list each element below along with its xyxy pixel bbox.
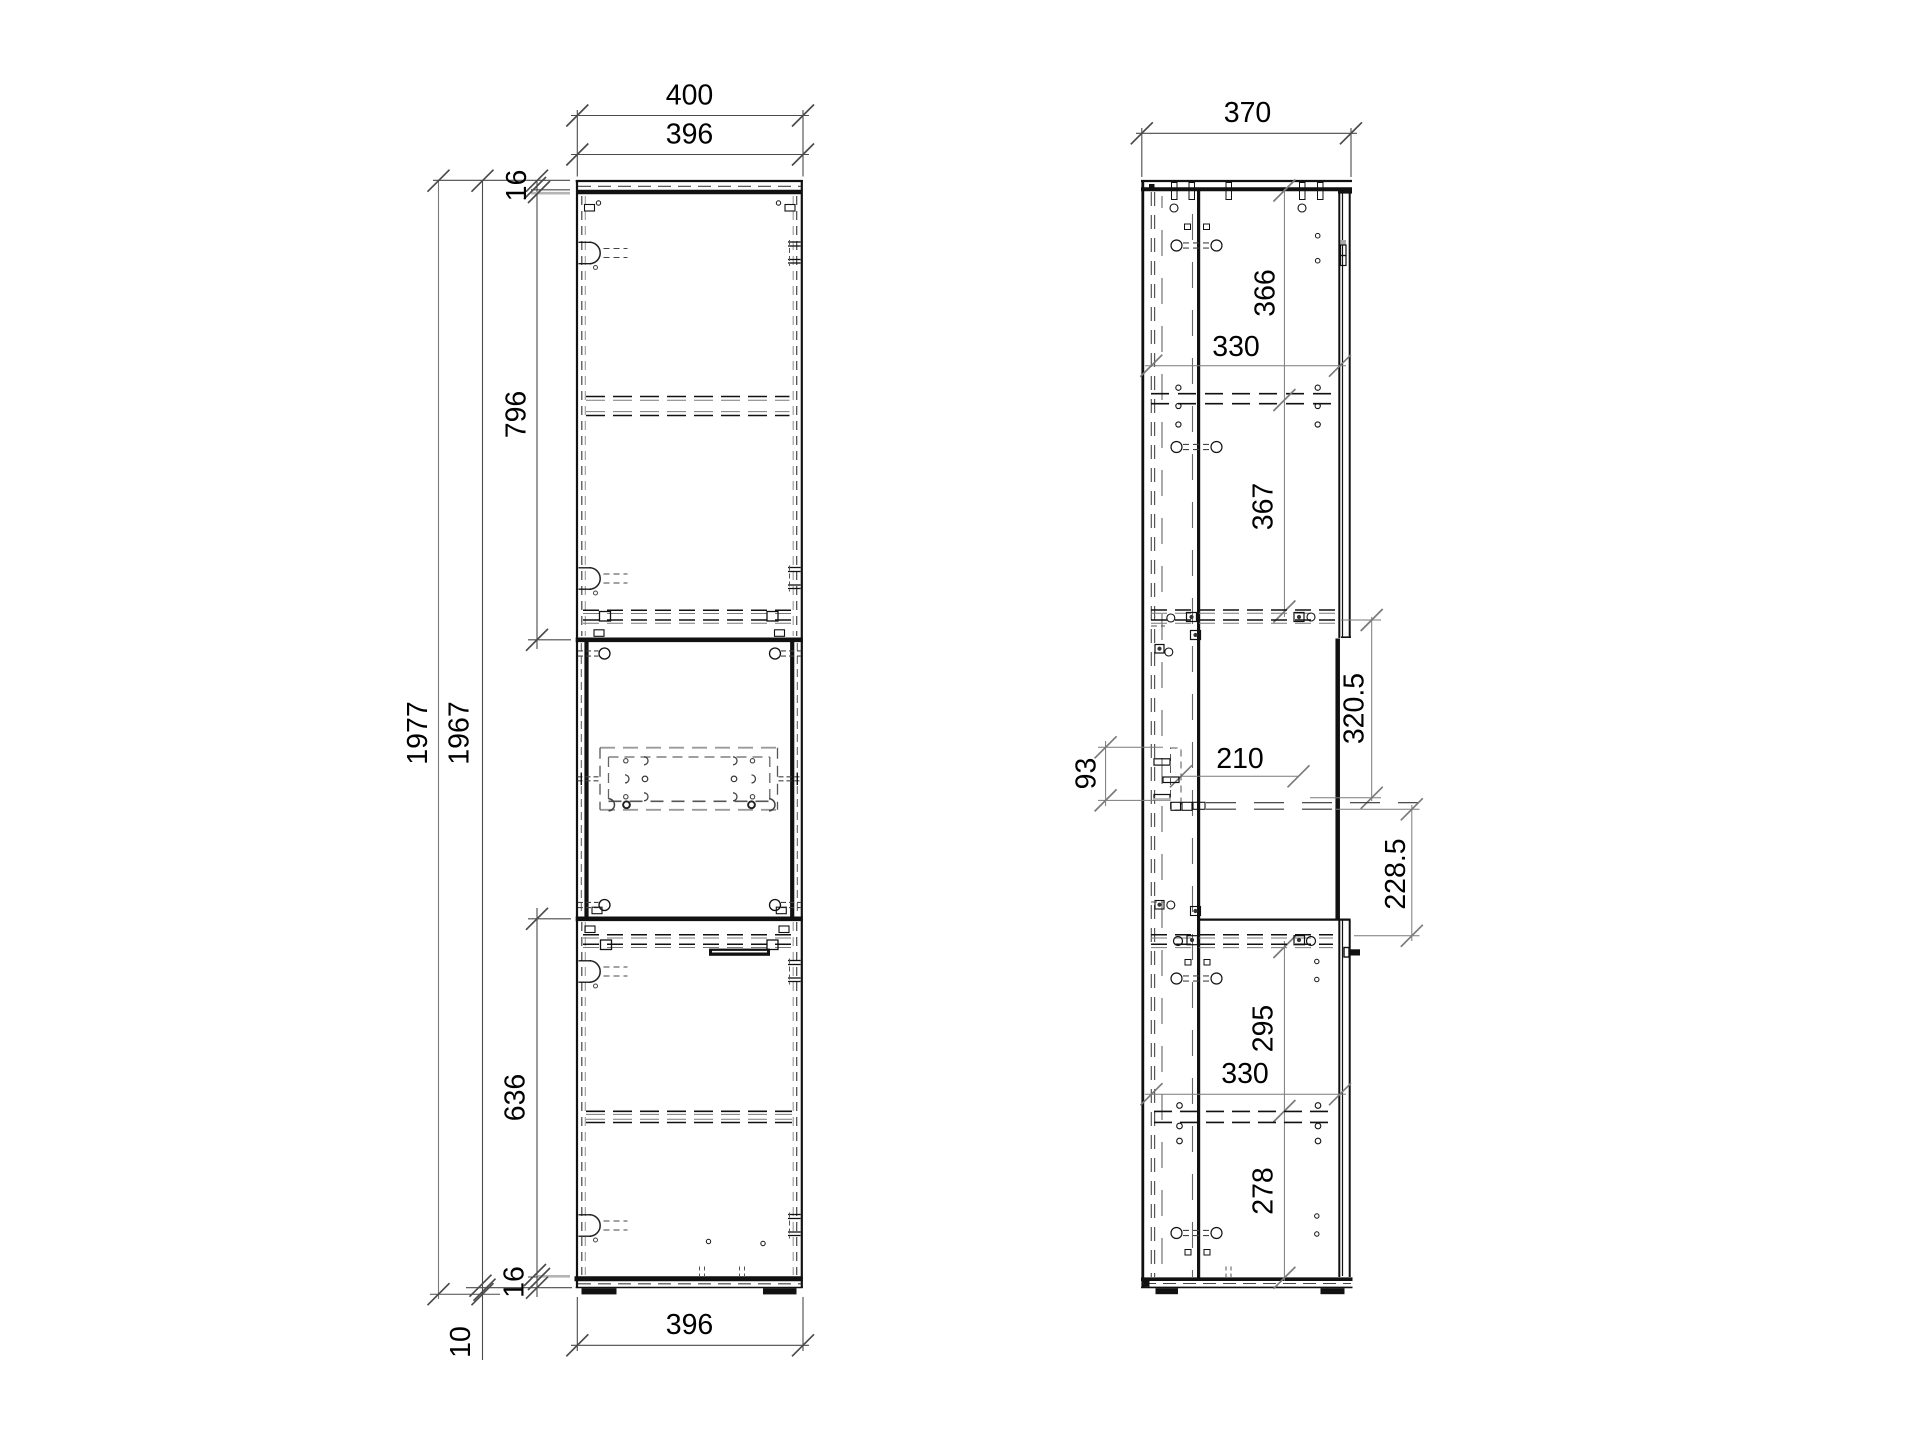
svg-text:796: 796 bbox=[501, 391, 533, 439]
svg-text:16: 16 bbox=[499, 1266, 531, 1298]
svg-text:636: 636 bbox=[500, 1074, 532, 1122]
svg-text:210: 210 bbox=[1216, 743, 1264, 775]
svg-text:400: 400 bbox=[666, 80, 714, 112]
svg-text:1967: 1967 bbox=[444, 701, 476, 764]
svg-text:228.5: 228.5 bbox=[1380, 838, 1412, 909]
svg-text:370: 370 bbox=[1224, 97, 1272, 129]
svg-text:366: 366 bbox=[1250, 269, 1282, 317]
svg-text:330: 330 bbox=[1221, 1058, 1269, 1090]
svg-text:93: 93 bbox=[1071, 758, 1103, 790]
svg-text:396: 396 bbox=[666, 1309, 714, 1341]
svg-text:278: 278 bbox=[1248, 1167, 1280, 1215]
svg-text:396: 396 bbox=[666, 119, 714, 151]
svg-text:367: 367 bbox=[1248, 483, 1280, 531]
svg-text:16: 16 bbox=[501, 170, 533, 202]
svg-text:330: 330 bbox=[1212, 331, 1260, 363]
svg-text:320.5: 320.5 bbox=[1339, 673, 1371, 744]
svg-text:1977: 1977 bbox=[402, 701, 434, 764]
svg-text:10: 10 bbox=[445, 1326, 477, 1358]
svg-text:295: 295 bbox=[1248, 1005, 1280, 1053]
